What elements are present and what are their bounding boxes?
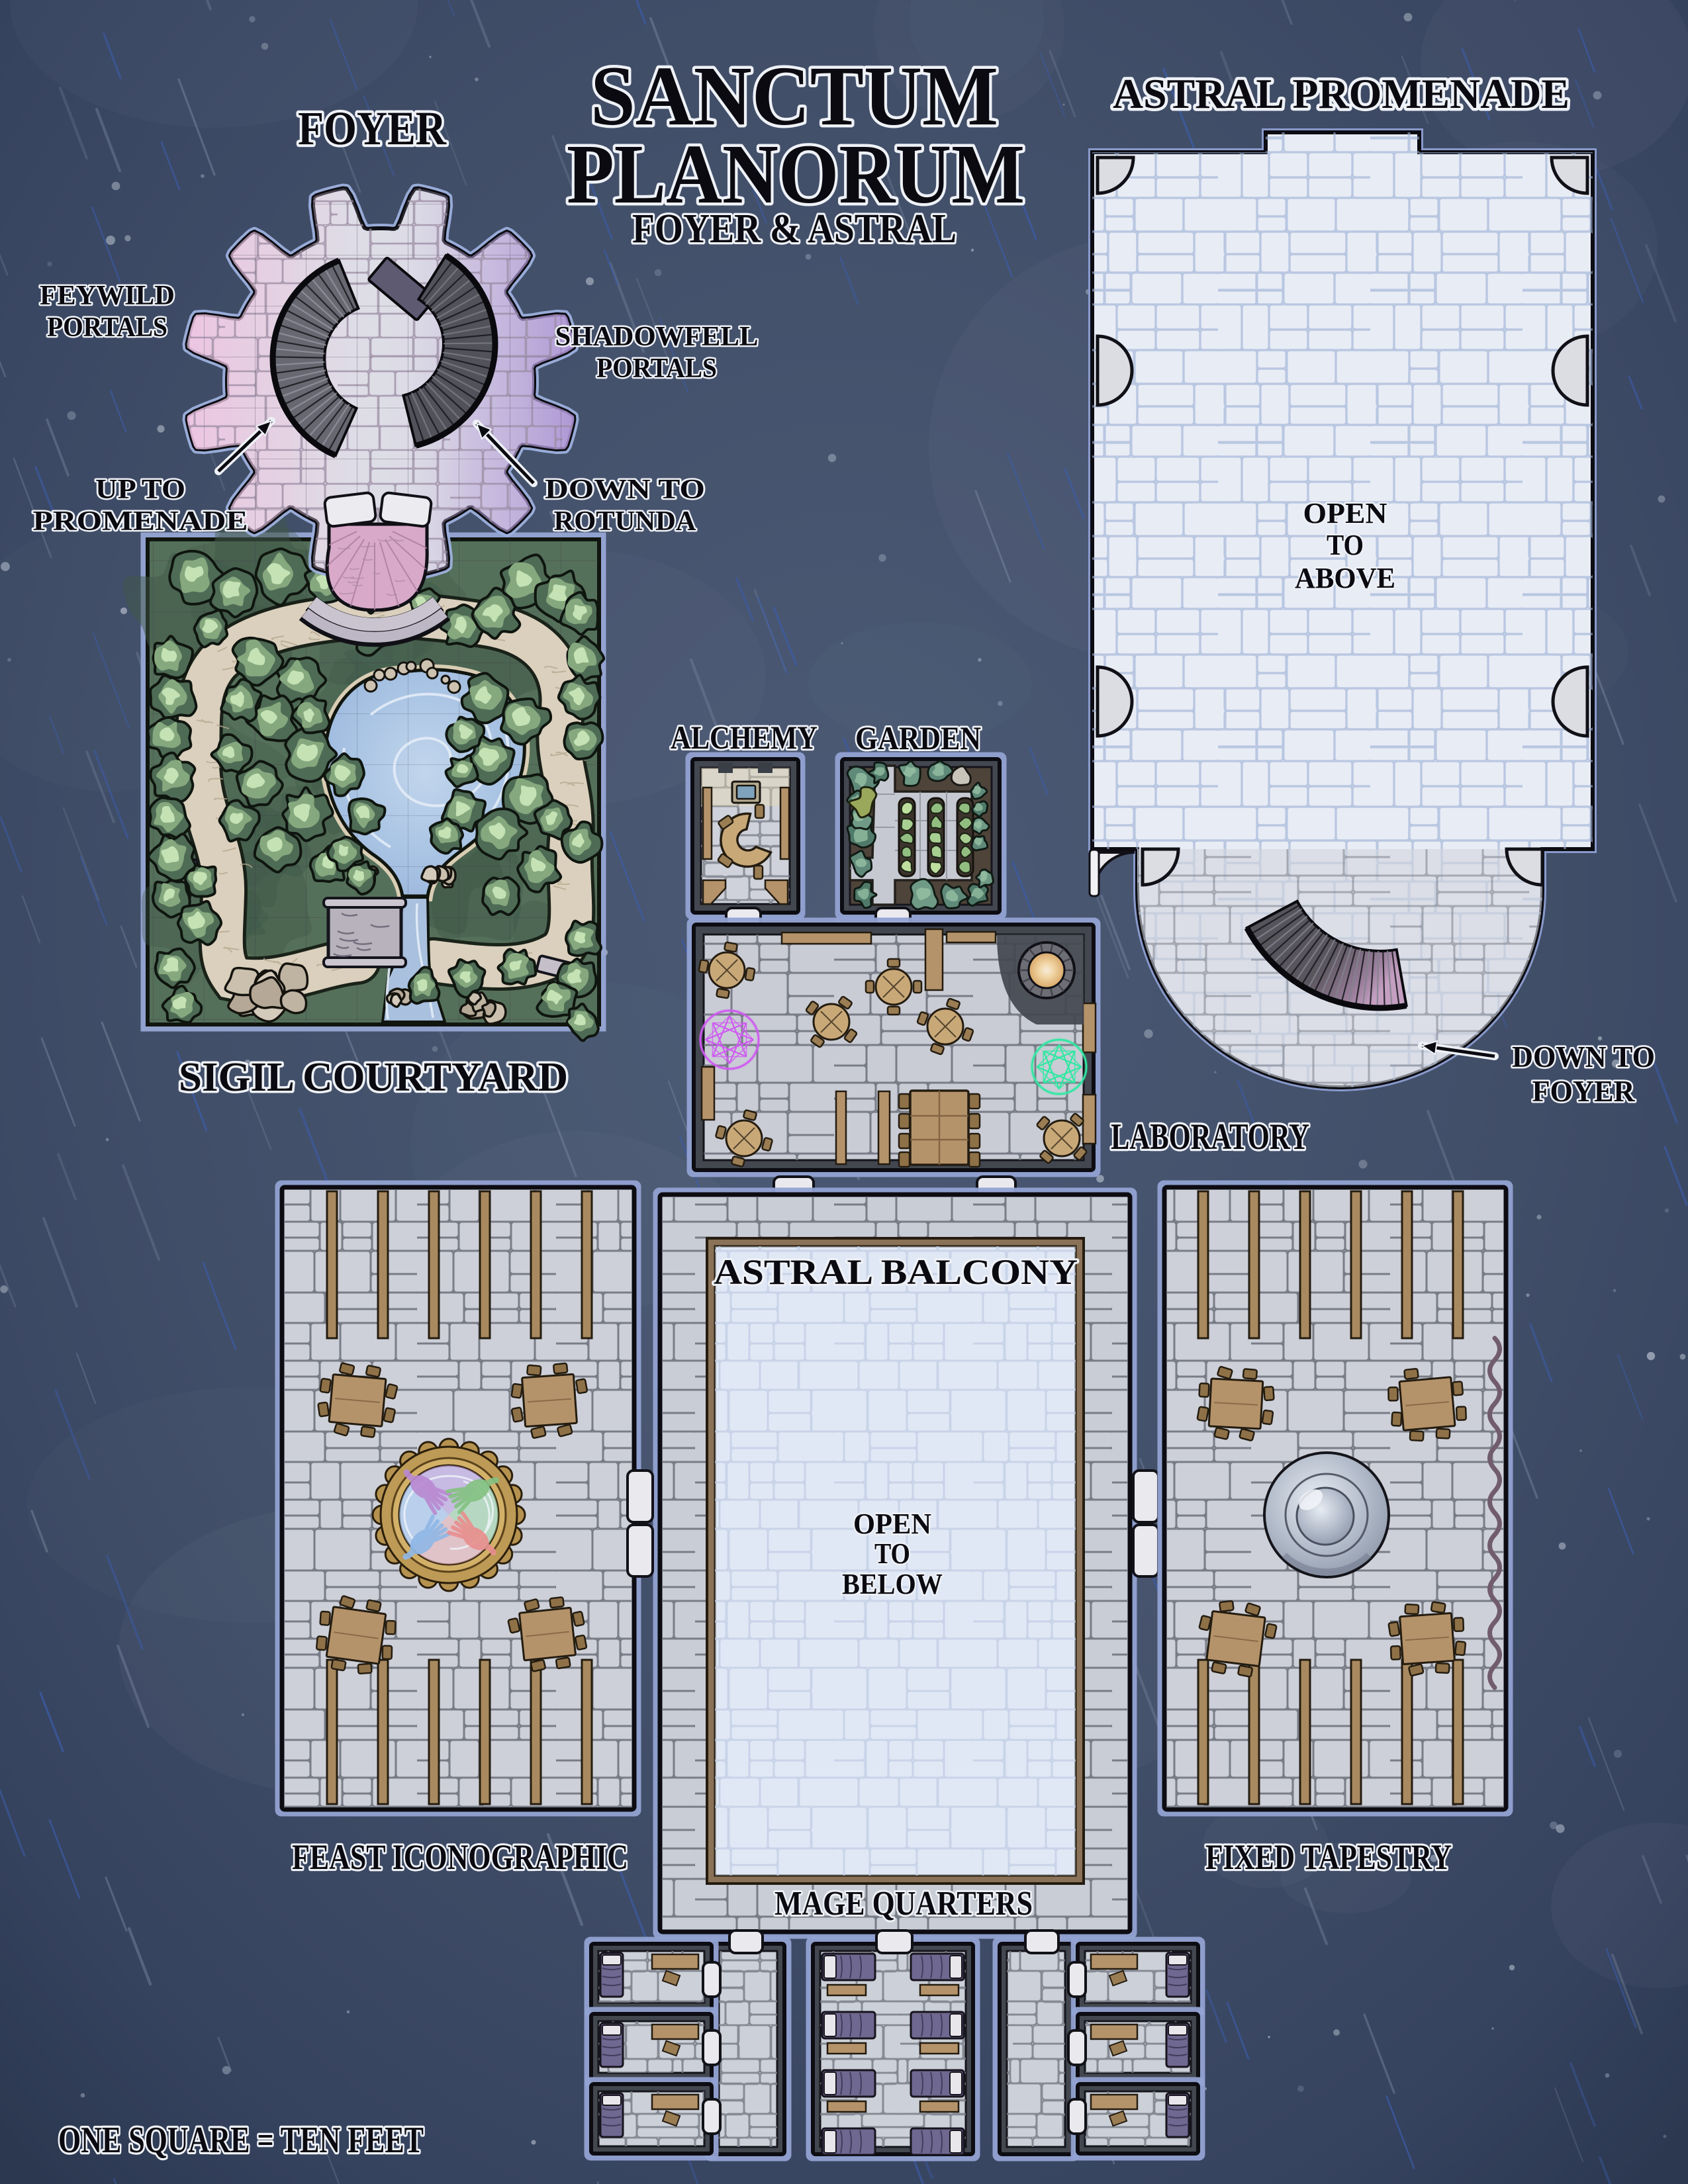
svg-text:FIXED TAPESTRY: FIXED TAPESTRY: [1205, 1837, 1452, 1877]
svg-text:DOWN TO: DOWN TO: [545, 475, 705, 505]
svg-text:PORTALS: PORTALS: [47, 312, 167, 343]
svg-text:ALCHEMY: ALCHEMY: [671, 719, 818, 756]
svg-text:FOYER: FOYER: [298, 102, 447, 155]
svg-text:FOYER & ASTRAL: FOYER & ASTRAL: [632, 206, 957, 251]
svg-text:DOWN TO: DOWN TO: [1512, 1040, 1655, 1073]
svg-text:ABOVE: ABOVE: [1295, 562, 1395, 594]
svg-text:ONE SQUARE = TEN FEET: ONE SQUARE = TEN FEET: [58, 2120, 424, 2161]
svg-text:SHADOWFELL: SHADOWFELL: [555, 322, 759, 352]
svg-text:PROMENADE: PROMENADE: [33, 506, 248, 537]
svg-text:FEAST ICONOGRAPHIC: FEAST ICONOGRAPHIC: [292, 1837, 628, 1877]
svg-text:UP TO: UP TO: [95, 475, 185, 505]
svg-text:TO: TO: [1327, 529, 1364, 561]
svg-text:SIGIL COURTYARD: SIGIL COURTYARD: [179, 1055, 568, 1100]
svg-text:FEYWILD: FEYWILD: [40, 281, 175, 311]
svg-text:GARDEN: GARDEN: [855, 719, 981, 756]
svg-text:OPEN: OPEN: [853, 1508, 931, 1540]
svg-text:FOYER: FOYER: [1532, 1074, 1636, 1108]
svg-text:LABORATORY: LABORATORY: [1111, 1116, 1309, 1158]
svg-text:TO: TO: [874, 1537, 910, 1570]
svg-text:ASTRAL PROMENADE: ASTRAL PROMENADE: [1113, 70, 1570, 117]
svg-text:ASTRAL BALCONY: ASTRAL BALCONY: [714, 1252, 1078, 1292]
svg-text:BELOW: BELOW: [842, 1568, 943, 1600]
svg-text:ROTUNDA: ROTUNDA: [554, 506, 697, 537]
svg-text:PORTALS: PORTALS: [596, 353, 717, 384]
svg-text:OPEN: OPEN: [1303, 497, 1387, 529]
svg-text:MAGE QUARTERS: MAGE QUARTERS: [774, 1885, 1033, 1923]
